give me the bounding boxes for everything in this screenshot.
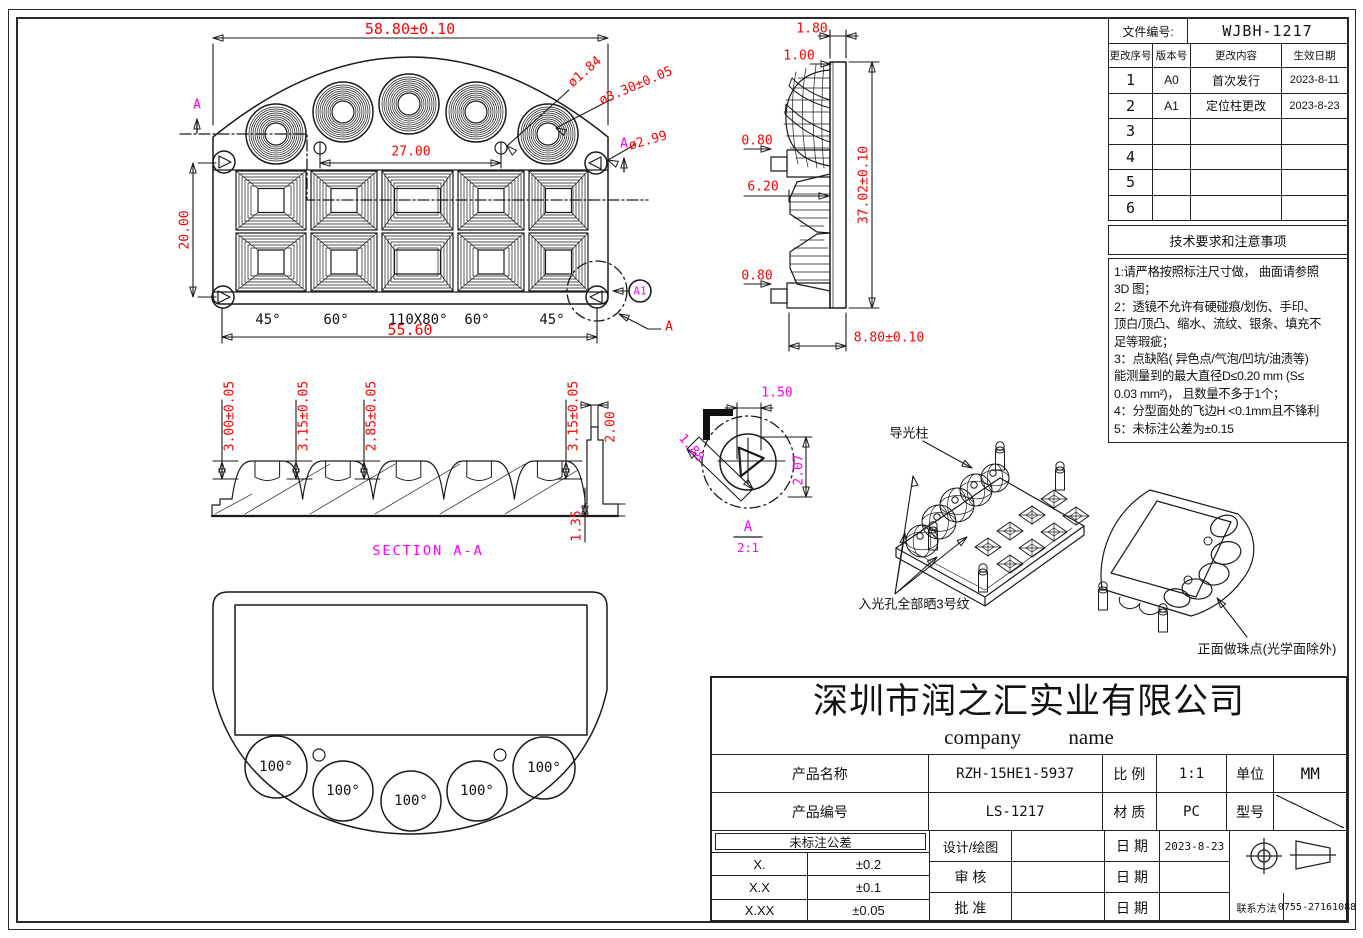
- tol-x-value: ±0.2: [808, 853, 929, 875]
- rev-row-ver: [1153, 196, 1191, 221]
- file-no-value: WJBH-1217: [1188, 19, 1347, 43]
- detail-scale: 2:1: [737, 541, 759, 555]
- dim-sec-h1: 3.00±0.05: [223, 381, 238, 451]
- tolerance-title: 未标注公差: [715, 833, 926, 850]
- approve-date: [1160, 893, 1230, 922]
- dim-detail-1: 1.50: [761, 386, 792, 401]
- tol-xx-label: X.X: [712, 876, 808, 898]
- detail-ref-label: A: [665, 320, 673, 335]
- unit-value: MM: [1274, 755, 1346, 793]
- rev-row-date: [1282, 145, 1347, 171]
- note-entry-holes: 入光孔全部晒3号纹: [858, 594, 969, 613]
- dim-side-1: 1.80: [796, 22, 827, 37]
- dim-sec-w: 2.00: [604, 411, 619, 442]
- tech-notes-body: 1:请严格按照标注尺寸做， 曲面请参照 3D 图； 2：透镜不允许有硬碰痕/划伤…: [1108, 258, 1348, 443]
- title-block: 深圳市润之汇实业有限公司 company name 产品名称 RZH-15HE1…: [710, 676, 1348, 922]
- rev-row-ver: A1: [1153, 94, 1191, 120]
- note-light-pillar: 导光柱: [889, 423, 928, 442]
- top-view: [180, 38, 661, 343]
- rev-row-no: 6: [1109, 196, 1153, 221]
- scale-value: 1:1: [1157, 755, 1227, 793]
- tol-xxx-label: X.XX: [712, 900, 808, 922]
- design-date: 2023-8-23: [1160, 831, 1230, 862]
- iso-back-view: [895, 441, 1089, 606]
- product-name-label: 产品名称: [712, 755, 929, 793]
- rev-row-date: 2023-8-11: [1282, 68, 1347, 94]
- detail-balloon: A1: [633, 285, 646, 298]
- tol-xx-value: ±0.1: [808, 876, 929, 898]
- tech-note-line: 5：未标注公差为±0.15: [1114, 421, 1344, 438]
- angle-label-5: 45°: [539, 312, 564, 328]
- date-label-3: 日 期: [1105, 893, 1160, 922]
- design-signature: [1012, 831, 1105, 862]
- dim-top-width: 58.80±0.10: [365, 20, 455, 38]
- rev-row-no: 1: [1109, 68, 1153, 94]
- rev-row-no: 4: [1109, 145, 1153, 171]
- detail-name: A: [744, 519, 752, 535]
- revision-table: 文件编号: WJBH-1217 更改序号 版本号 更改内容 生效日期 1 A0 …: [1108, 18, 1348, 221]
- rev-row-content: 首次发行: [1191, 68, 1282, 94]
- unit-label: 单位: [1227, 755, 1275, 793]
- date-label-1: 日 期: [1105, 831, 1160, 862]
- drawing-sheet: 58.80±0.10 27.00 20.00 55.60 ø1.84 ø3.30…: [0, 0, 1363, 938]
- tech-note-line: 0.03 mm²)， 且数量不多于1个；: [1114, 386, 1344, 403]
- company-name-en: company name: [712, 724, 1346, 750]
- rev-row-no: 5: [1109, 170, 1153, 196]
- scale-label: 比 例: [1103, 755, 1158, 793]
- rev-row-ver: [1153, 145, 1191, 171]
- rev-col-date: 生效日期: [1282, 44, 1347, 68]
- tech-note-line: 4：分型面处的飞边H <0.1mm且不锋利: [1114, 403, 1344, 420]
- dim-side-4: 6.20: [747, 180, 778, 195]
- design-label: 设计/绘图: [930, 831, 1012, 862]
- contact-value: 0755-27161088: [1284, 893, 1350, 922]
- angle-label-1: 45°: [255, 312, 280, 328]
- tech-note-line: 3D 图；: [1114, 281, 1344, 298]
- rev-row-date: [1282, 170, 1347, 196]
- dim-side-5: 0.80: [741, 269, 772, 284]
- tech-note-line: 顶白/顶凸、缩水、流纹、银条、填充不: [1114, 316, 1344, 333]
- rev-row-content: 定位柱更改: [1191, 94, 1282, 120]
- rev-row-no: 3: [1109, 119, 1153, 145]
- section-marker-left: A: [193, 98, 201, 113]
- tol-x-label: X.: [712, 853, 808, 875]
- section-title: SECTION A-A: [372, 543, 483, 559]
- contact-label: 联系方法: [1230, 893, 1284, 922]
- rev-col-ver: 版本号: [1153, 44, 1191, 68]
- tech-note-line: 能测量到的最大直径D≤0.20 mm (S≤: [1114, 368, 1344, 385]
- bottom-angle-5: 100°: [527, 760, 561, 776]
- projection-symbol-cell: [1230, 831, 1350, 862]
- rev-row-content: [1191, 145, 1282, 171]
- company-name-cn: 深圳市润之汇实业有限公司: [712, 680, 1346, 724]
- check-label: 审 核: [930, 862, 1012, 893]
- approve-label: 批 准: [930, 893, 1012, 922]
- rev-col-content: 更改内容: [1191, 44, 1282, 68]
- tech-note-line: 3：点缺陷( 异色点/气泡/凹坑/油渍等): [1114, 351, 1344, 368]
- tol-xxx-value: ±0.05: [808, 900, 929, 922]
- rev-row-ver: [1153, 119, 1191, 145]
- check-signature: [1012, 862, 1105, 893]
- file-no-label: 文件编号:: [1109, 19, 1188, 43]
- rev-col-no: 更改序号: [1109, 44, 1153, 68]
- product-name-value: RZH-15HE1-5937: [929, 755, 1103, 793]
- tech-note-line: 2：透镜不允许有硬碰痕/划伤、手印、: [1114, 299, 1344, 316]
- date-label-2: 日 期: [1105, 862, 1160, 893]
- dim-sec-h4: 3.15±0.05: [567, 381, 582, 451]
- rev-row-no: 2: [1109, 94, 1153, 120]
- dim-side-depth: 8.80±0.10: [854, 331, 924, 346]
- tech-note-line: 足等瑕疵；: [1114, 334, 1344, 351]
- dim-detail-3: 2.07: [792, 454, 807, 485]
- angle-label-3: 110X80°: [388, 312, 447, 328]
- product-no-label: 产品编号: [712, 793, 929, 831]
- material-value: PC: [1157, 793, 1227, 831]
- company-box: 深圳市润之汇实业有限公司 company name: [712, 678, 1346, 755]
- rev-row-date: [1282, 196, 1347, 221]
- rev-row-content: [1191, 170, 1282, 196]
- angle-label-2: 60°: [323, 312, 348, 328]
- dim-side-3: 0.80: [741, 134, 772, 149]
- dim-sec-t: 1.35: [570, 510, 585, 541]
- check-date: [1160, 862, 1230, 893]
- rev-row-content: [1191, 196, 1282, 221]
- rev-row-content: [1191, 119, 1282, 145]
- bottom-angle-2: 100°: [326, 783, 360, 799]
- section-marker-right: A: [620, 137, 628, 152]
- tech-notes-title: 技术要求和注意事项: [1108, 225, 1348, 255]
- bottom-angle-1: 100°: [259, 759, 293, 775]
- tech-note-line: 1:请严格按照标注尺寸做， 曲面请参照: [1114, 264, 1344, 281]
- rev-row-date: [1282, 119, 1347, 145]
- bottom-angle-3: 100°: [394, 793, 428, 809]
- note-front-beads: 正面做珠点(光学面除外): [1198, 639, 1337, 658]
- rev-row-ver: [1153, 170, 1191, 196]
- rev-row-ver: A0: [1153, 68, 1191, 94]
- angle-label-4: 60°: [464, 312, 489, 328]
- rev-row-date: 2023-8-23: [1282, 94, 1347, 120]
- approve-signature: [1012, 893, 1105, 922]
- dim-sec-h2: 3.15±0.05: [297, 381, 312, 451]
- dim-side-2: 1.00: [783, 49, 814, 64]
- dim-top-height: 20.00: [178, 210, 193, 249]
- product-no-value: LS-1217: [929, 793, 1103, 831]
- dim-top-pitch: 27.00: [391, 145, 430, 160]
- material-label: 材 质: [1103, 793, 1158, 831]
- dim-side-height: 37.02±0.10: [857, 146, 872, 224]
- bottom-angle-4: 100°: [460, 783, 494, 799]
- dim-sec-h3: 2.85±0.05: [365, 381, 380, 451]
- iso-front-view: [1099, 490, 1254, 637]
